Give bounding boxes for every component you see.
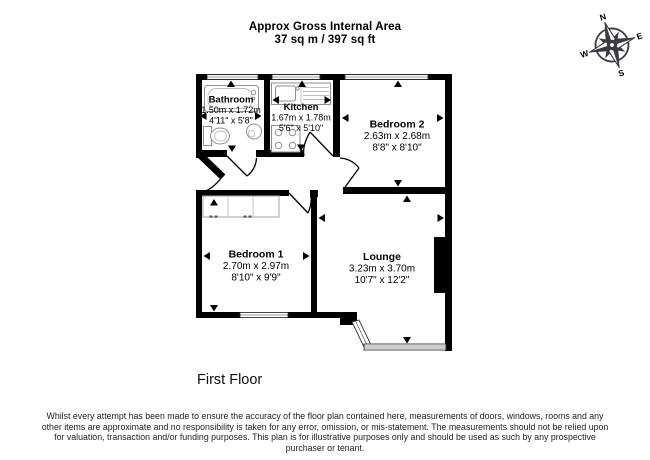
bedroom1-name: Bedroom 1 xyxy=(229,249,284,261)
compass-e-label: E xyxy=(635,30,644,41)
lounge-metric: 3.23m x 3.70m xyxy=(349,264,415,275)
bathroom-window xyxy=(207,75,258,80)
bedroom1-imperial: 8'10" x 9'9" xyxy=(231,273,281,284)
toilet xyxy=(204,127,230,146)
bathroom-metric: 1.50m x 1.72m xyxy=(201,105,261,115)
kitchen-window xyxy=(272,75,320,80)
lounge-name: Lounge xyxy=(363,251,401,263)
kitchen-label: Kitchen 1.67m x 1.78m 5'6" x 5'10" xyxy=(271,102,331,133)
compass-n-label: N xyxy=(598,11,607,22)
bedroom2-label: Bedroom 2 2.63m x 2.68m 8'8" x 8'10" xyxy=(364,119,430,154)
wardrobe xyxy=(203,196,279,218)
bedroom2-imperial: 8'8" x 8'10" xyxy=(372,143,422,154)
bathroom-imperial: 4'11" x 5'8" xyxy=(209,116,253,126)
bedroom1-window xyxy=(240,313,288,318)
bathroom-door xyxy=(227,156,257,176)
compass-w-label: W xyxy=(579,48,591,60)
bedroom2-door xyxy=(340,158,359,190)
bedroom2-name: Bedroom 2 xyxy=(370,119,425,131)
bathroom-label: Bathroom 1.50m x 1.72m 4'11" x 5'8" xyxy=(201,95,261,126)
bedroom2-window xyxy=(345,75,428,80)
kitchen-imperial: 5'6" x 5'10" xyxy=(279,123,323,133)
floor-level-label: First Floor xyxy=(197,372,262,388)
chimney-breast xyxy=(434,237,446,293)
bedroom2-metric: 2.63m x 2.68m xyxy=(364,131,430,142)
bedroom1-label: Bedroom 1 2.70m x 2.97m 8'10" x 9'9" xyxy=(223,249,289,284)
bathroom-name: Bathroom xyxy=(209,95,254,106)
bedroom1-door xyxy=(289,193,311,213)
lounge-bay-window xyxy=(352,320,446,350)
floor-plan-svg: Bathroom 1.50m x 1.72m 4'11" x 5'8" Kitc… xyxy=(0,0,650,460)
bedroom1-metric: 2.70m x 2.97m xyxy=(223,261,289,272)
entrance-door xyxy=(202,177,222,192)
kitchen-door xyxy=(304,132,333,156)
kitchen-name: Kitchen xyxy=(284,102,319,113)
kitchen-metric: 1.67m x 1.78m xyxy=(271,113,331,123)
bathroom-sink xyxy=(247,124,262,139)
disclaimer-text: Whilst every attempt has been made to en… xyxy=(39,411,611,453)
lounge-label: Lounge 3.23m x 3.70m 10'7" x 12'2" xyxy=(349,251,415,286)
compass-s-label: S xyxy=(617,67,626,78)
lounge-imperial: 10'7" x 12'2" xyxy=(355,275,410,286)
compass-rose-icon: N E S W xyxy=(570,2,650,88)
